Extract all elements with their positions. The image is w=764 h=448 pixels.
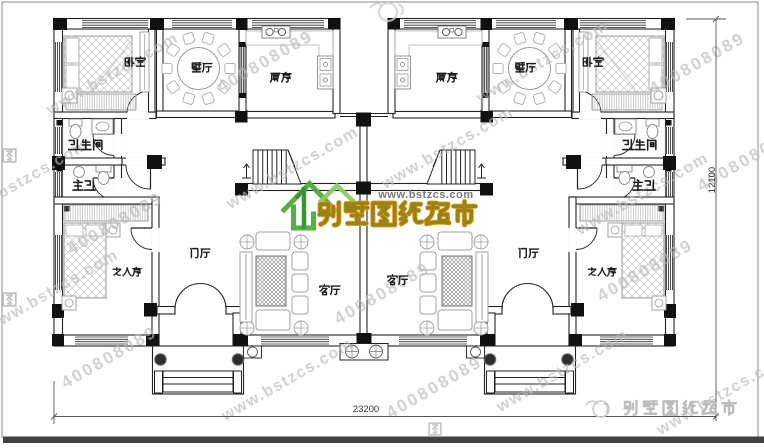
svg-text:23200: 23200 (353, 404, 379, 415)
svg-text:12100: 12100 (707, 167, 718, 193)
svg-text:www.bstzcs.com: www.bstzcs.com (377, 189, 473, 201)
